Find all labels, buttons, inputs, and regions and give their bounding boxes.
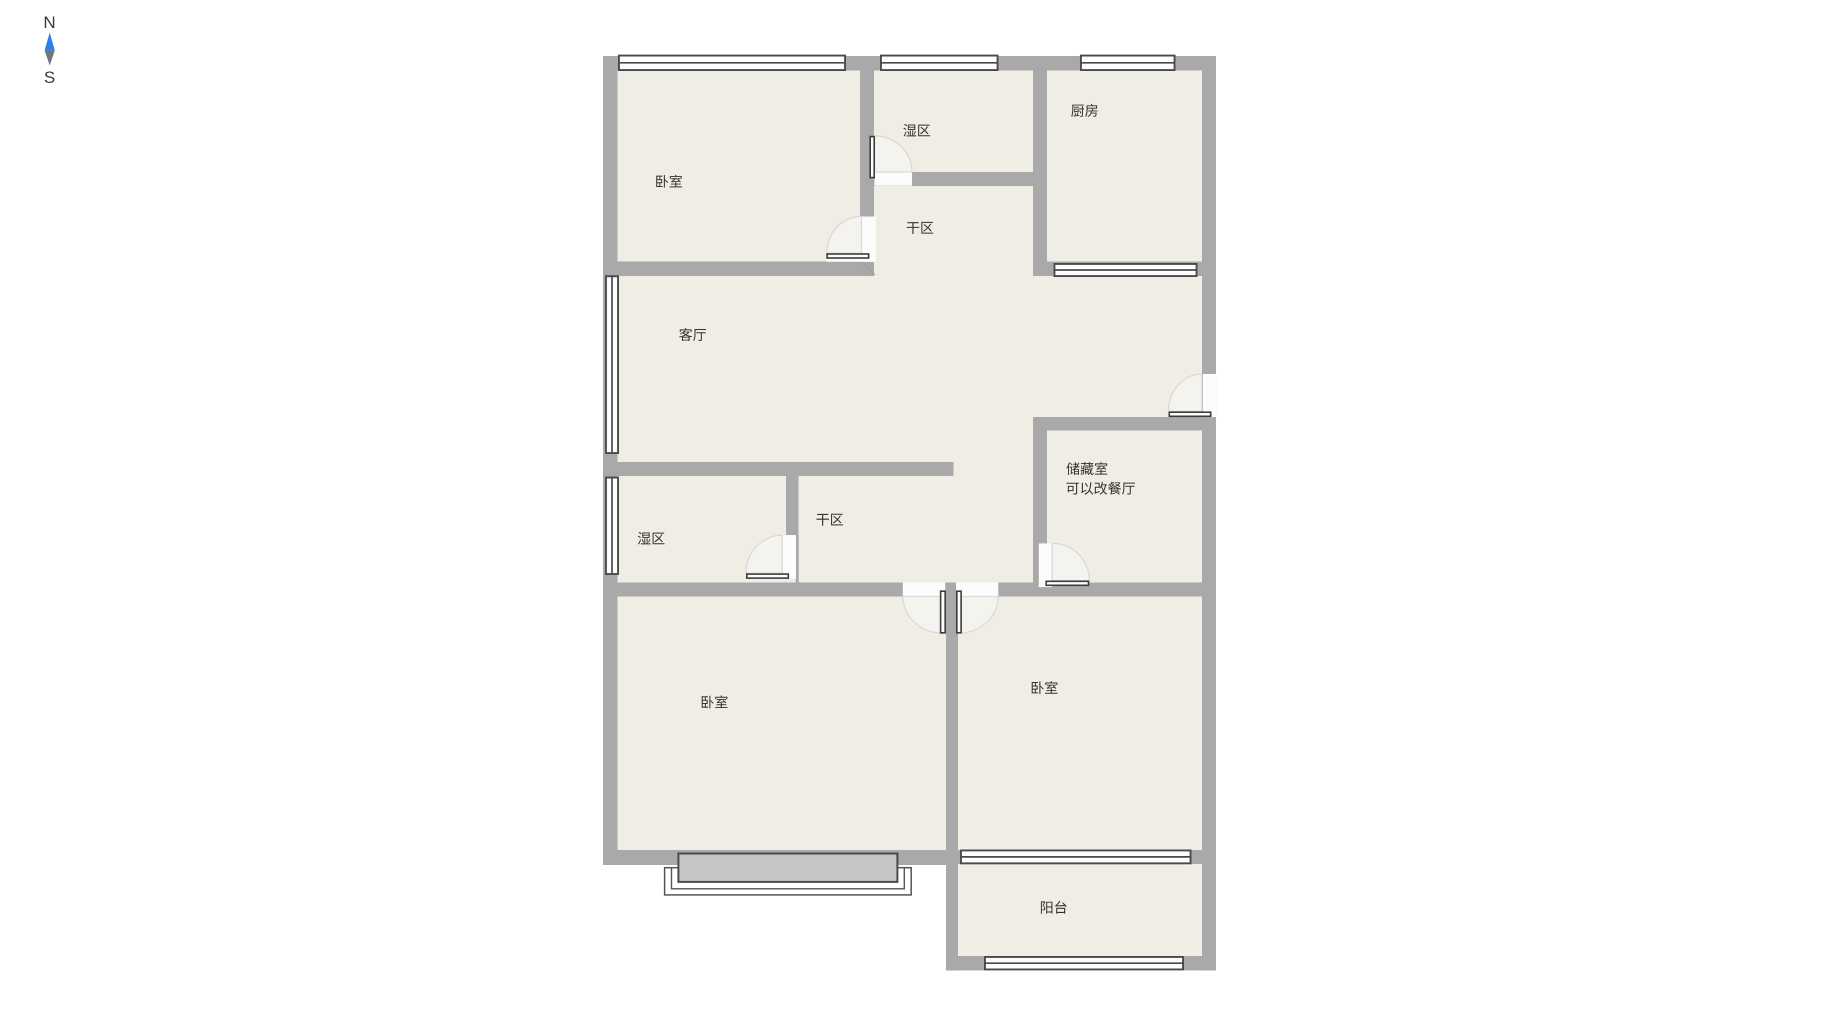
svg-text:N: N — [43, 13, 55, 32]
svg-text:S: S — [44, 68, 55, 87]
